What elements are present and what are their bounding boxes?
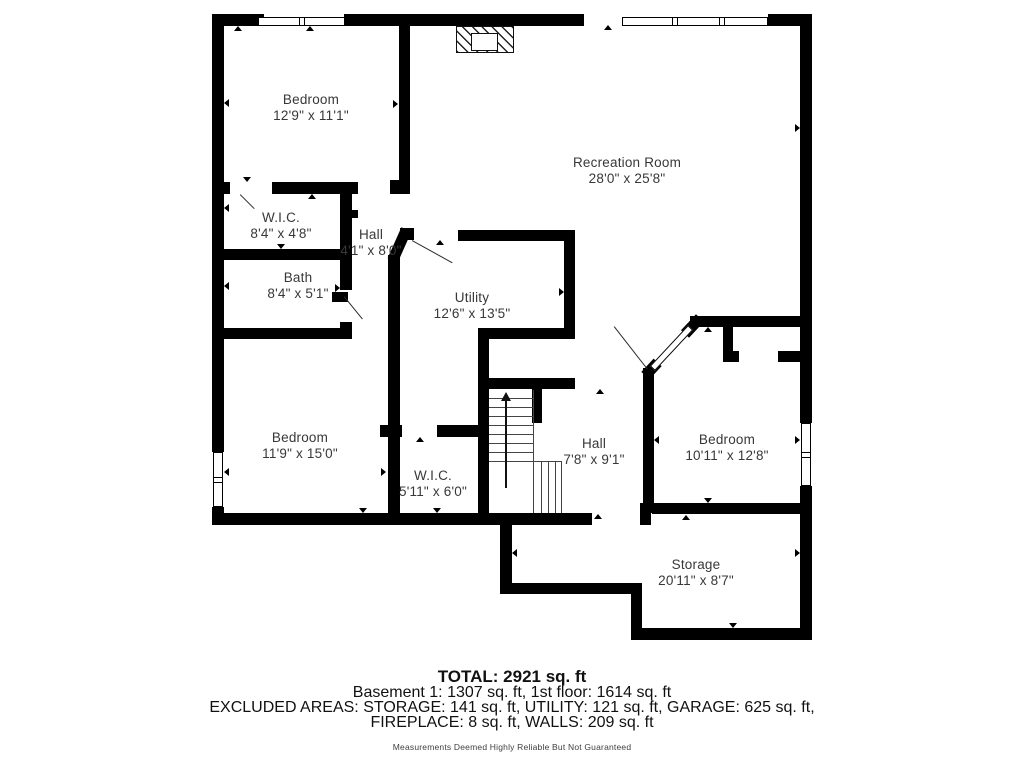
wall	[800, 14, 812, 423]
dimension-tick	[795, 124, 800, 132]
wall	[478, 328, 575, 339]
room-label: Recreation Room28'0" x 25'8"	[532, 155, 722, 186]
room-name: Hall	[276, 227, 466, 243]
wall	[723, 351, 739, 362]
room-name: Bedroom	[205, 430, 395, 446]
fireplace-firebox	[471, 33, 498, 51]
room-dimensions: 8'4" x 5'1"	[203, 286, 393, 302]
dimension-tick	[594, 514, 602, 519]
window	[622, 17, 768, 26]
room-label: Utility12'6" x 13'5"	[377, 290, 567, 321]
room-name: Bedroom	[216, 92, 406, 108]
excluded-areas-text: EXCLUDED AREAS: STORAGE: 141 sq. ft, UTI…	[0, 700, 1024, 715]
dimension-tick	[308, 194, 316, 199]
wall	[478, 378, 575, 389]
dimension-tick	[243, 177, 251, 182]
window-mullion	[672, 18, 673, 25]
room-name: Storage	[601, 557, 791, 573]
stairs-arrow-head	[501, 392, 511, 401]
room-name: Bedroom	[632, 432, 822, 448]
window-mullion	[214, 482, 222, 483]
excluded-areas-text-2: FIREPLACE: 8 sq. ft, WALLS: 209 sq. ft	[0, 715, 1024, 730]
dimension-tick	[234, 26, 242, 31]
room-name: Recreation Room	[532, 155, 722, 171]
dimension-tick	[795, 549, 800, 557]
room-name: Utility	[377, 290, 567, 306]
room-label: Storage20'11" x 8'7"	[601, 557, 791, 588]
room-name: W.I.C.	[338, 468, 528, 484]
wall	[212, 182, 230, 194]
dimension-tick	[512, 549, 517, 557]
wall	[652, 503, 812, 514]
room-dimensions: 28'0" x 25'8"	[532, 171, 722, 187]
wall	[500, 525, 512, 589]
room-name: W.I.C.	[186, 210, 376, 226]
door-leaf	[613, 326, 647, 369]
dimension-tick	[604, 25, 612, 30]
room-name: Bath	[203, 270, 393, 286]
stair-winder	[555, 461, 556, 513]
area-summary: TOTAL: 2921 sq. ft Basement 1: 1307 sq. …	[0, 669, 1024, 752]
disclaimer-text: Measurements Deemed Highly Reliable But …	[0, 742, 1024, 752]
dimension-tick	[704, 327, 712, 332]
stair-tread	[489, 425, 534, 426]
window-mullion	[677, 18, 678, 25]
dimension-tick	[704, 498, 712, 503]
stair-winder	[541, 461, 542, 513]
wall	[344, 14, 584, 26]
room-label: W.I.C.5'11" x 6'0"	[338, 468, 528, 499]
wall	[778, 351, 800, 362]
stair-winder	[548, 461, 549, 513]
window	[258, 17, 345, 26]
dimension-tick	[682, 515, 690, 520]
floorplan-page: Bedroom12'9" x 11'1"Recreation Room28'0"…	[0, 0, 1024, 768]
wall	[690, 316, 800, 327]
dimension-tick	[224, 468, 229, 476]
floor-plan: Bedroom12'9" x 11'1"Recreation Room28'0"…	[0, 0, 1024, 645]
room-label: Bedroom10'11" x 12'8"	[632, 432, 822, 463]
stair-tread	[489, 434, 534, 435]
dimension-tick	[433, 508, 441, 513]
room-label: Bedroom12'9" x 11'1"	[216, 92, 406, 123]
door-leaf	[240, 194, 255, 209]
total-area-text: TOTAL: 2921 sq. ft	[0, 669, 1024, 685]
dimension-tick	[306, 26, 314, 31]
room-dimensions: 4'1" x 8'0"	[276, 243, 466, 259]
open-door-leaf	[650, 325, 693, 371]
stair-tread	[489, 416, 534, 417]
wall	[631, 628, 812, 640]
room-label: Bedroom11'9" x 15'0"	[205, 430, 395, 461]
stair-tread	[489, 398, 534, 399]
room-label: Hall4'1" x 8'0"	[276, 227, 466, 258]
window-mullion	[304, 18, 305, 25]
room-dimensions: 12'9" x 11'1"	[216, 108, 406, 124]
wall	[212, 328, 352, 339]
stair-turn-edge	[561, 461, 562, 513]
wall	[212, 513, 592, 525]
window-mullion	[214, 477, 222, 478]
wall	[723, 327, 733, 353]
wall	[458, 230, 572, 241]
room-dimensions: 10'11" x 12'8"	[632, 448, 822, 464]
wall	[390, 180, 410, 194]
window-mullion	[299, 18, 300, 25]
room-dimensions: 20'11" x 8'7"	[601, 573, 791, 589]
window-mullion	[719, 18, 720, 25]
wall	[437, 425, 480, 437]
stair-tread	[489, 407, 534, 408]
dimension-tick	[359, 508, 367, 513]
room-dimensions: 11'9" x 15'0"	[205, 446, 395, 462]
room-label: Bath8'4" x 5'1"	[203, 270, 393, 301]
floor-areas-text: Basement 1: 1307 sq. ft, 1st floor: 1614…	[0, 685, 1024, 700]
room-dimensions: 5'11" x 6'0"	[338, 484, 528, 500]
window-mullion	[724, 18, 725, 25]
room-dimensions: 12'6" x 13'5"	[377, 306, 567, 322]
dimension-tick	[416, 437, 424, 442]
dimension-tick	[729, 623, 737, 628]
dimension-tick	[596, 389, 604, 394]
